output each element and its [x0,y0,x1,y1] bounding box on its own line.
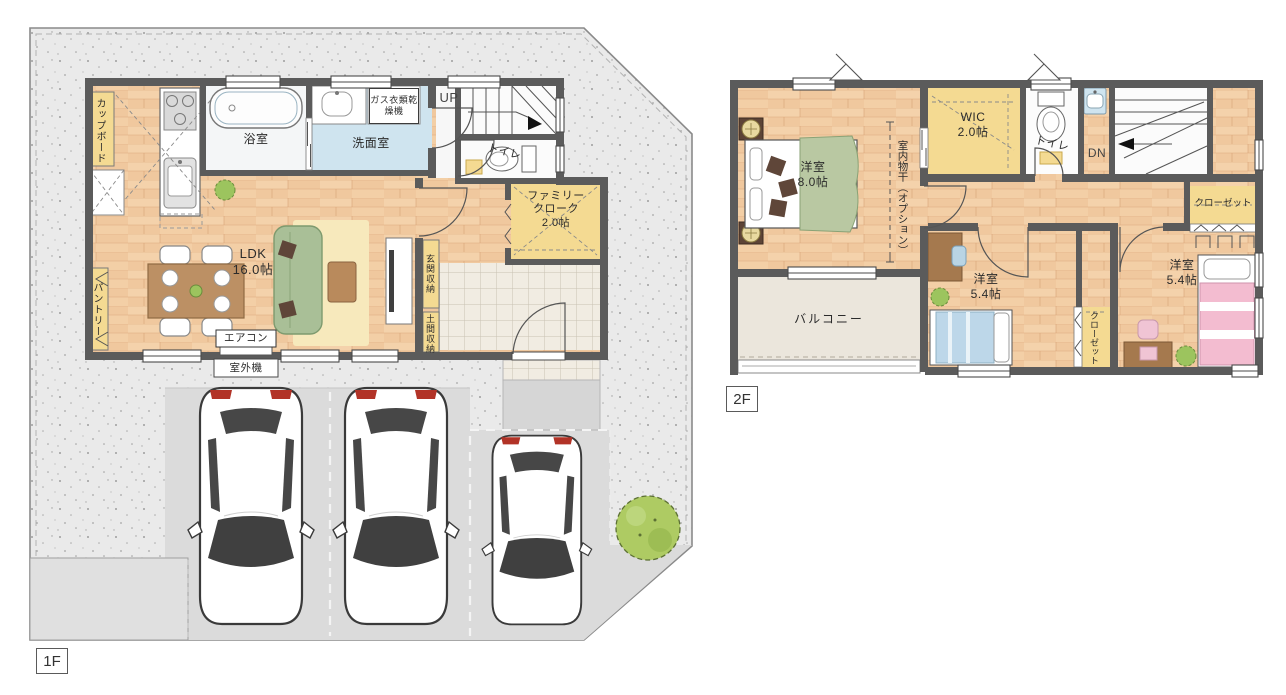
floor2-badge: 2F [726,386,758,412]
label-family-cloak: ファミリー クローク 2.0帖 [516,190,596,230]
label-aircon: エアコン [217,331,275,346]
label-bath: 浴室 [226,132,286,147]
wash-basin-2f [1084,88,1106,114]
bedroom-center-size: 5.4帖 [954,287,1018,302]
label-closet-top: クローゼット [1190,198,1256,210]
approach-slab [503,380,600,430]
ldk-size: 16.0帖 [218,262,288,278]
car-2 [333,388,459,624]
sofa [274,226,322,334]
bedroom-right-name: 洋室 [1150,258,1214,273]
label-bedroom-center: 洋室 5.4帖 [954,272,1018,301]
label-gas-dryer: ガス衣類乾燥機 [369,88,419,124]
label-pantry: パントリー [91,274,101,344]
floorplan-page: カップボード 浴室 洗面室 ガス衣類乾燥機 UP トイレ ファミリー クローク … [0,0,1286,695]
entry-tile-floor [439,263,600,350]
label-indoor-drying: 室内物干（オプション） [897,118,908,278]
label-bedroom-main: 洋室 8.0帖 [782,160,844,189]
label-bedroom-right: 洋室 5.4帖 [1150,258,1214,287]
floor1-badge: 1F [36,648,68,674]
bathtub [210,88,302,128]
tree [616,496,680,560]
wic-size: 2.0帖 [938,125,1008,140]
bedroom-main-size: 8.0帖 [782,175,844,190]
coffee-table [328,262,356,302]
label-wic: WIC 2.0帖 [938,110,1008,139]
kitchen-counter [160,88,202,228]
label-up: UP [434,90,464,106]
car-3 [482,436,592,625]
plant-1f [215,180,235,200]
concrete-pad [30,558,188,640]
porch [503,360,600,380]
ldk-name: LDK [218,246,288,262]
tv-board [386,238,412,324]
stairs-up-floor [461,86,556,136]
label-cupboard: カップボード [94,96,104,166]
family-cloak-size: 2.0帖 [516,217,596,230]
vent-icons [830,54,1060,80]
label-ldk: LDK 16.0帖 [218,246,288,278]
label-washroom: 洗面室 [326,136,416,151]
car-1 [188,388,314,624]
label-closet-mid: クローゼット [1089,309,1098,367]
label-balcony: バルコニー [768,312,890,327]
family-cloak-line1: ファミリー [516,190,596,203]
vanity-sink [312,86,366,124]
bedroom-main-name: 洋室 [782,160,844,175]
label-doma-storage: 土間収納 [425,314,434,354]
bedroom-center-name: 洋室 [954,272,1018,287]
label-genkan-storage: 玄関収納 [425,246,434,302]
label-outdoor-unit: 室外機 [215,360,277,376]
floor2-house [730,54,1263,377]
wic-name: WIC [938,110,1008,125]
bedroom-right-size: 5.4帖 [1150,273,1214,288]
label-dn: DN [1080,146,1114,161]
family-cloak-line2: クローク [516,203,596,216]
